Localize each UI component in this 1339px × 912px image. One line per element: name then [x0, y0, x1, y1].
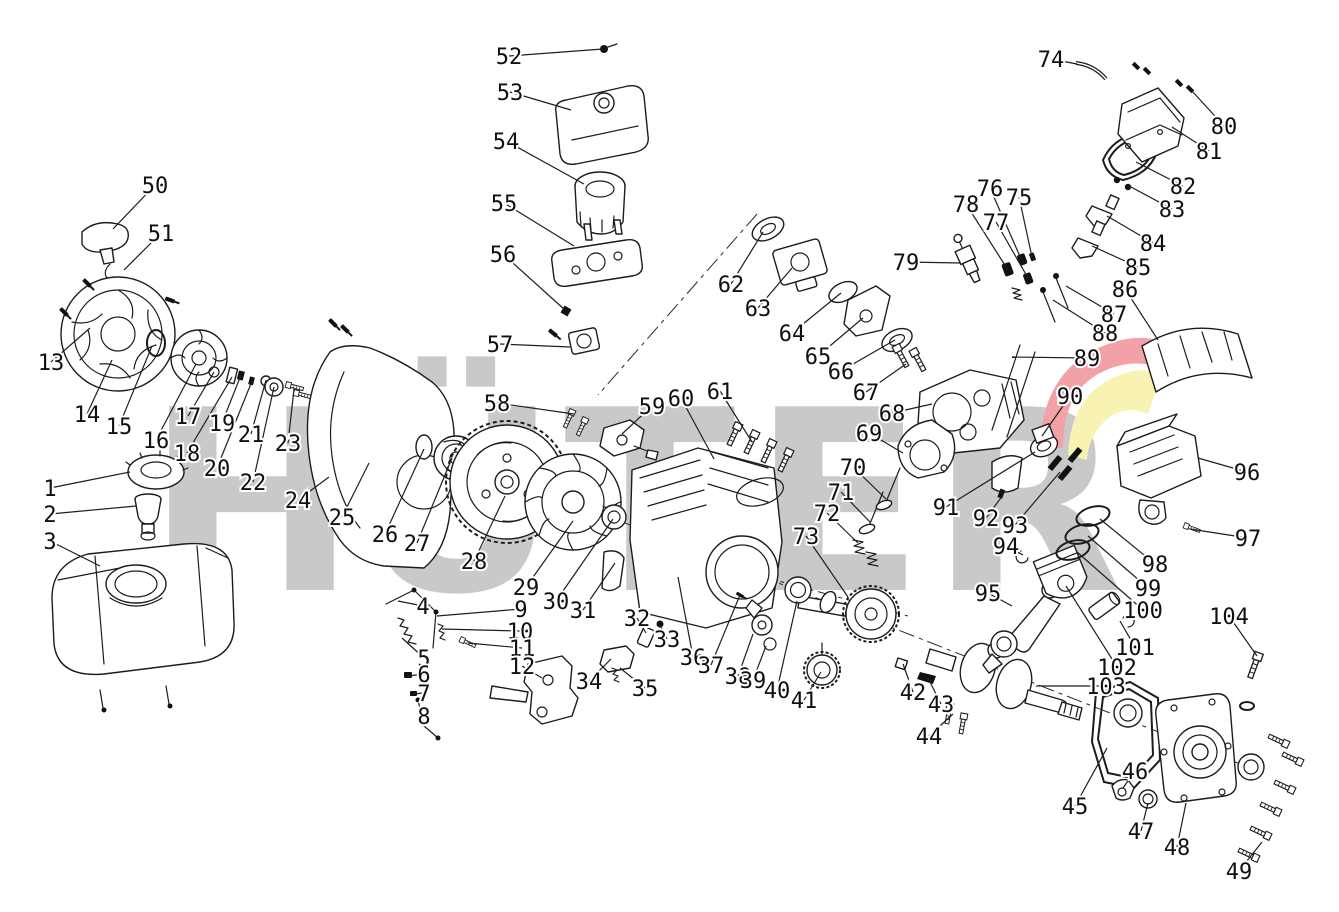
part-label-62: 62: [718, 273, 745, 298]
carb-spacer: [568, 327, 600, 354]
part-label-74: 74: [1038, 48, 1065, 73]
part-label-52: 52: [496, 45, 523, 70]
muffler-bolt: [1183, 523, 1201, 534]
fuel-tank: [52, 544, 234, 713]
part-label-23: 23: [275, 432, 302, 457]
leader-line-52: [509, 49, 603, 56]
part-label-37: 37: [698, 654, 725, 679]
part-label-45: 45: [1062, 795, 1089, 820]
valve-cover: [1118, 88, 1184, 162]
part-label-60: 60: [668, 387, 695, 412]
part-label-48: 48: [1164, 836, 1191, 861]
part-label-96: 96: [1234, 461, 1261, 486]
part-label-81: 81: [1196, 140, 1223, 165]
leader-line-2: [50, 506, 136, 514]
part-label-94: 94: [993, 535, 1020, 560]
cooling-fan: [525, 454, 621, 550]
part-label-22: 22: [240, 471, 267, 496]
part-label-26: 26: [372, 523, 399, 548]
part-label-21: 21: [238, 423, 265, 448]
part-label-24: 24: [285, 489, 312, 514]
part-label-12: 12: [509, 655, 536, 680]
part-label-20: 20: [204, 457, 231, 482]
part-label-75: 75: [1006, 186, 1033, 211]
part-label-41: 41: [791, 689, 818, 714]
muffler-heat-shield: [1142, 328, 1252, 392]
part-label-27: 27: [404, 532, 431, 557]
cover-screws: [1132, 62, 1194, 93]
part-label-83: 83: [1159, 198, 1186, 223]
cylinder-block: [630, 448, 787, 628]
part-label-58: 58: [484, 392, 511, 417]
crank-nut: [895, 658, 907, 670]
part-label-98: 98: [1142, 553, 1169, 578]
part-label-68: 68: [879, 402, 906, 427]
part-label-73: 73: [793, 525, 820, 550]
part-label-2: 2: [43, 503, 56, 528]
part-label-44: 44: [916, 725, 943, 750]
part-label-50: 50: [142, 174, 169, 199]
part-label-78: 78: [953, 193, 980, 218]
part-label-17: 17: [175, 405, 202, 430]
rocker-nut-2: [1125, 184, 1131, 190]
part-label-69: 69: [856, 422, 883, 447]
exploded-parts-diagram-page: HÜTER: [0, 0, 1339, 912]
part-label-95: 95: [975, 582, 1002, 607]
part-label-7: 7: [417, 682, 430, 707]
part-label-104: 104: [1209, 605, 1249, 630]
part-label-15: 15: [106, 415, 133, 440]
bearing-main: [785, 577, 811, 603]
part-label-80: 80: [1211, 115, 1238, 140]
part-label-42: 42: [900, 681, 927, 706]
part-label-89: 89: [1074, 347, 1101, 372]
breather-parts: [1001, 252, 1036, 300]
part-label-79: 79: [893, 251, 920, 276]
engine-exploded-diagram: HÜTER: [0, 0, 1339, 912]
part-label-18: 18: [174, 442, 201, 467]
part-label-8: 8: [417, 705, 430, 730]
part-label-64: 64: [779, 322, 806, 347]
part-label-61: 61: [707, 380, 734, 405]
rocker-studs: [1040, 273, 1068, 322]
part-label-51: 51: [148, 222, 175, 247]
part-label-66: 66: [828, 360, 855, 385]
part-label-84: 84: [1140, 232, 1167, 257]
part-label-57: 57: [487, 333, 514, 358]
carburetor-assembly: [748, 212, 915, 356]
part-label-82: 82: [1170, 175, 1197, 200]
cover-bolts: [1237, 733, 1304, 863]
part-label-76: 76: [977, 177, 1004, 202]
part-label-32: 32: [624, 607, 651, 632]
output-bearing: [1238, 754, 1264, 780]
spark-plug: [949, 231, 984, 284]
part-label-34: 34: [576, 670, 603, 695]
part-label-30: 30: [543, 590, 570, 615]
part-label-54: 54: [493, 130, 520, 155]
part-label-35: 35: [632, 677, 659, 702]
part-label-3: 3: [43, 530, 56, 555]
part-label-16: 16: [143, 429, 170, 454]
part-label-40: 40: [764, 679, 791, 704]
part-label-1: 1: [43, 477, 56, 502]
part-label-100: 100: [1123, 599, 1163, 624]
part-label-47: 47: [1128, 820, 1155, 845]
rocker-arms: [1072, 195, 1119, 258]
drain-bolt: [1240, 651, 1263, 710]
part-label-29: 29: [513, 576, 540, 601]
part-label-103: 103: [1086, 675, 1126, 700]
part-label-28: 28: [461, 550, 488, 575]
muffler: [1117, 414, 1201, 524]
part-label-67: 67: [853, 381, 880, 406]
part-label-59: 59: [639, 395, 666, 420]
part-label-25: 25: [329, 506, 356, 531]
part-label-97: 97: [1235, 527, 1262, 552]
part-label-70: 70: [840, 456, 867, 481]
part-label-90: 90: [1057, 385, 1084, 410]
part-label-86: 86: [1112, 278, 1139, 303]
part-label-31: 31: [570, 599, 597, 624]
part-label-13: 13: [38, 351, 65, 376]
crankcase-cover: [1156, 694, 1237, 803]
part-label-19: 19: [209, 412, 236, 437]
part-label-43: 43: [928, 693, 955, 718]
leader-line-1: [50, 472, 130, 488]
part-label-55: 55: [491, 192, 518, 217]
part-label-77: 77: [983, 211, 1010, 236]
part-label-14: 14: [74, 403, 101, 428]
part-label-39: 39: [740, 669, 767, 694]
part-label-53: 53: [497, 81, 524, 106]
part-label-88: 88: [1092, 322, 1119, 347]
air-filter-cover: [556, 86, 649, 165]
breather-tube: [1076, 63, 1106, 79]
part-label-72: 72: [814, 502, 841, 527]
part-label-91: 91: [933, 496, 960, 521]
part-label-46: 46: [1122, 760, 1149, 785]
part-label-56: 56: [490, 243, 517, 268]
part-label-4: 4: [416, 595, 429, 620]
part-label-33: 33: [654, 628, 681, 653]
part-label-49: 49: [1226, 860, 1253, 885]
starter-pulley: [171, 330, 227, 386]
part-label-63: 63: [745, 297, 772, 322]
part-label-92: 92: [973, 507, 1000, 532]
cover-bearing: [1114, 699, 1142, 727]
